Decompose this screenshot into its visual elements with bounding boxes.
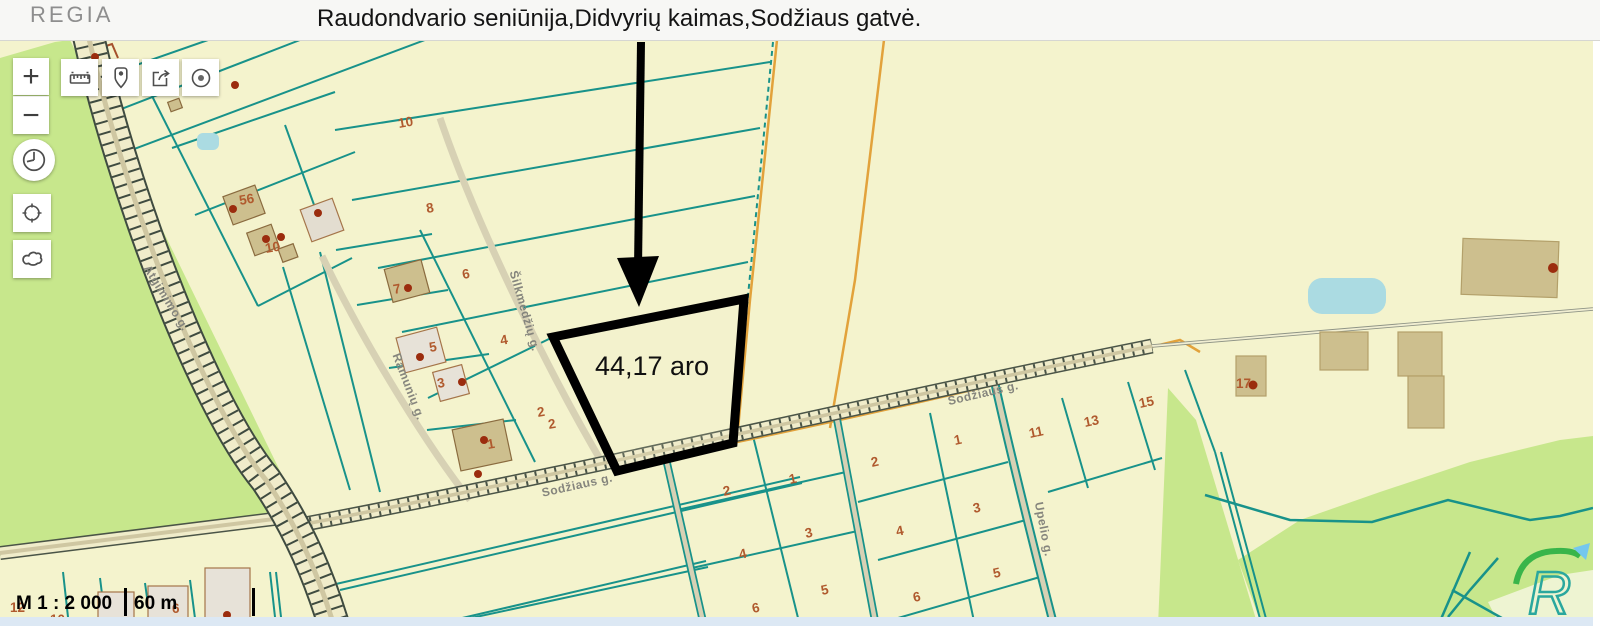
pond-large [1308,278,1386,314]
map-container: 44,17 aro Atgimimo g. Šilkmedžių g. Ramu… [0,40,1593,617]
regia-map-app: REGIA Raudondvario seniūnija,Didvyrių ka… [0,0,1600,626]
scale-ratio: M 1 : 2 000 [16,593,112,615]
target-button[interactable] [182,59,219,96]
parcel-number: 17 [1236,376,1251,391]
scale-distance: 60 m [134,593,177,615]
scale-tick-left [124,588,127,616]
parcel-number: 10 [264,239,281,256]
history-button[interactable] [13,139,55,181]
zoom-out-button[interactable]: − [13,96,49,134]
page-title: Raudondvario seniūnija,Didvyrių kaimas,S… [317,5,921,33]
scale-tick-right [252,588,255,616]
pin-icon [109,66,133,90]
regia-logo[interactable]: REGIA [30,2,113,28]
share-button[interactable] [142,59,179,96]
share-icon [149,66,173,90]
pond-small [197,133,219,150]
measure-button[interactable] [61,59,98,96]
plus-icon: + [22,62,40,92]
parcel-number: 10 [397,114,414,131]
parcel-number: 56 [238,190,256,207]
zoom-in-button[interactable]: + [13,58,49,95]
header-bar: REGIA Raudondvario seniūnija,Didvyrių ka… [0,0,1600,41]
clock-icon [21,147,47,173]
map-bottom-strip [0,617,1593,626]
map-canvas[interactable]: 44,17 aro Atgimimo g. Šilkmedžių g. Ramu… [0,40,1593,617]
ruler-icon [68,66,92,90]
parcel-area-label: 44,17 aro [595,351,709,381]
target-dot-icon [189,66,213,90]
locate-button[interactable] [13,194,51,232]
marker-button[interactable] [102,59,139,96]
overview-button[interactable] [13,240,51,278]
crosshair-icon [20,201,44,225]
watermark-letter: R [1528,560,1571,617]
lithuania-outline-icon [19,246,45,272]
minus-icon: − [22,101,40,131]
